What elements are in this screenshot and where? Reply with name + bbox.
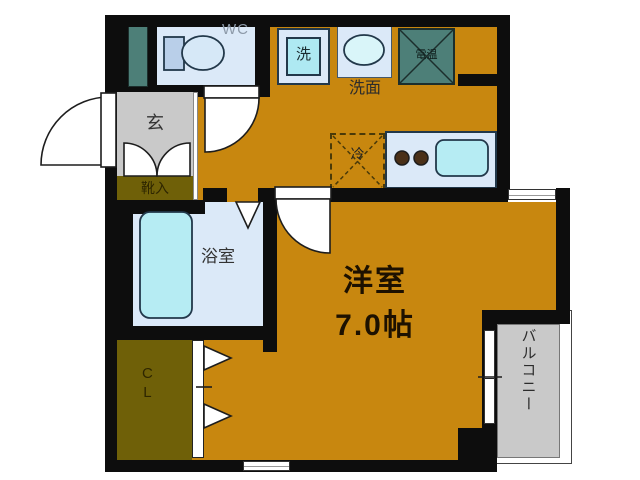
floorplan-canvas: WC 洗 洗面 電温 玄 靴入 浴室 冷 C L 洋室 7.0帖 バルコニー xyxy=(0,0,640,480)
shoe-storage-label: 靴入 xyxy=(117,181,193,196)
wc-door-arc xyxy=(205,98,259,152)
main-room-door-leaf xyxy=(275,187,331,199)
toilet-bowl-icon xyxy=(182,36,224,70)
symbols-overlay xyxy=(0,0,640,480)
main-room-name: 洋室 xyxy=(305,256,445,300)
refrigerator-label: 冷 xyxy=(330,147,385,162)
washstand-label: 洗面 xyxy=(336,80,394,98)
water-heater-label: 電温 xyxy=(398,49,455,61)
closet-door-marker-bottom xyxy=(204,404,231,428)
shoe-cabinet-door-right xyxy=(157,143,190,176)
entrance-door-arc xyxy=(41,97,109,165)
bathroom-label: 浴室 xyxy=(201,248,235,267)
entrance-door-leaf xyxy=(101,93,116,167)
wc-door-leaf xyxy=(204,86,259,98)
main-room-door-arc xyxy=(276,199,330,253)
toilet-tank-icon xyxy=(164,37,184,70)
stove-burner-icon xyxy=(395,151,409,165)
bathroom-folding-door xyxy=(236,202,260,228)
washstand-sink-icon xyxy=(344,35,384,65)
shoe-cabinet-door-left xyxy=(124,143,157,176)
bathtub-icon xyxy=(140,212,192,318)
main-room-label: 洋室 7.0帖 xyxy=(305,256,445,344)
wc-label: WC xyxy=(222,22,249,39)
stove-burner-icon xyxy=(414,151,428,165)
entrance-label: 玄 xyxy=(117,114,193,134)
closet-label: C L xyxy=(142,365,153,403)
main-room-size: 7.0帖 xyxy=(305,300,445,344)
balcony-label: バルコニー xyxy=(519,328,536,450)
washing-machine-label: 洗 xyxy=(286,47,321,64)
closet-door-marker-top xyxy=(204,346,231,370)
kitchen-sink-icon xyxy=(436,140,488,176)
